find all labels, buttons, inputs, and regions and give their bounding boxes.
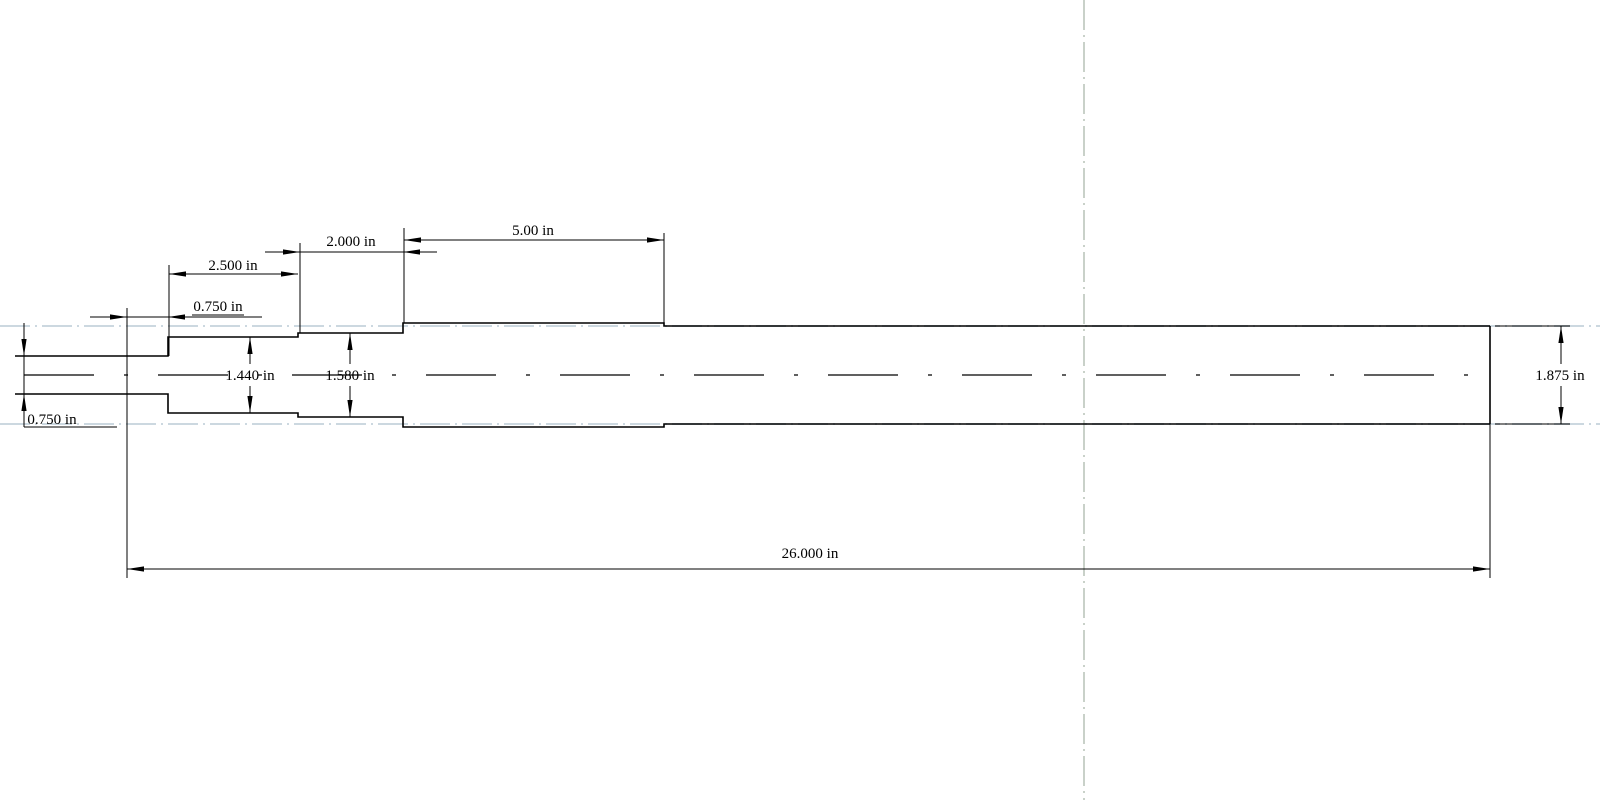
arrow-right-icon xyxy=(281,271,298,276)
arrow-right-icon xyxy=(110,314,127,319)
arrow-left-icon xyxy=(169,271,186,276)
dimension-lines xyxy=(24,240,1561,569)
arrow-left-icon xyxy=(127,566,144,571)
arrow-up-icon xyxy=(1558,326,1563,343)
arrow-right-icon xyxy=(283,249,300,254)
dim-label-overall-length: 26.000 in xyxy=(782,546,839,562)
arrow-right-icon xyxy=(1473,566,1490,571)
arrow-up-icon xyxy=(21,394,26,411)
arrow-down-icon xyxy=(21,339,26,356)
arrow-left-icon xyxy=(403,249,420,254)
arrow-down-icon xyxy=(247,396,252,413)
arrow-right-icon xyxy=(647,237,664,242)
arrow-up-icon xyxy=(247,337,252,354)
dim-label-pilot-diameter: 0.750 in xyxy=(27,412,77,428)
shaft-bottom-profile xyxy=(15,394,1490,427)
dim-label-section1-diameter: 1.440 in xyxy=(225,368,275,384)
dimension-arrowheads xyxy=(21,237,1563,571)
dim-label-section3-length: 5.00 in xyxy=(512,223,554,239)
arrow-down-icon xyxy=(1558,407,1563,424)
dim-label-section2-length: 2.000 in xyxy=(326,234,376,250)
arrow-left-icon xyxy=(404,237,421,242)
arrow-left-icon xyxy=(168,314,185,319)
dim-label-end-diameter: 1.875 in xyxy=(1535,368,1585,384)
dim-label-section2-diameter: 1.580 in xyxy=(325,368,375,384)
extension-lines xyxy=(127,228,1570,578)
arrow-up-icon xyxy=(347,333,352,350)
dim-label-section1-length: 2.500 in xyxy=(208,258,258,274)
dim-label-pilot-length: 0.750 in xyxy=(193,299,243,315)
arrow-down-icon xyxy=(347,400,352,417)
shaft-drawing-canvas: 0.750 in 2.500 in 2.000 in 5.00 in 26.00… xyxy=(0,0,1600,800)
shaft-top-profile xyxy=(15,323,1490,356)
drawing-sheet: 0.750 in 2.500 in 2.000 in 5.00 in 26.00… xyxy=(0,0,1600,800)
